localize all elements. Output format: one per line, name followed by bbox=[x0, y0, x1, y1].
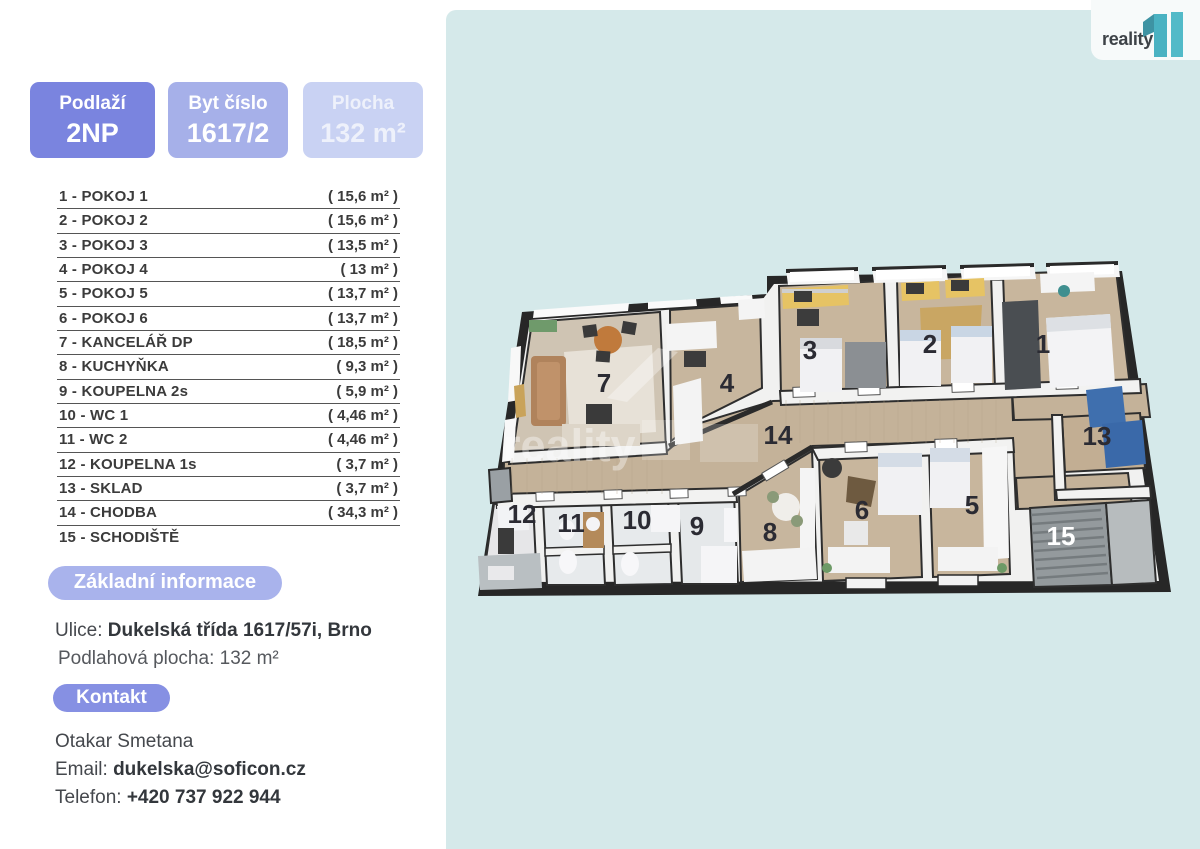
svg-text:5: 5 bbox=[965, 490, 979, 520]
svg-text:9: 9 bbox=[690, 511, 704, 541]
svg-text:reality: reality bbox=[503, 420, 636, 471]
svg-text:1: 1 bbox=[1036, 329, 1050, 359]
svg-text:6: 6 bbox=[855, 495, 869, 525]
svg-text:7: 7 bbox=[597, 368, 611, 398]
svg-text:15: 15 bbox=[1047, 521, 1076, 551]
svg-text:3: 3 bbox=[803, 335, 817, 365]
svg-text:11: 11 bbox=[557, 508, 585, 538]
svg-text:4: 4 bbox=[720, 368, 735, 398]
svg-text:10: 10 bbox=[623, 505, 652, 535]
svg-text:14: 14 bbox=[764, 420, 793, 450]
svg-text:8: 8 bbox=[763, 517, 777, 547]
svg-text:2: 2 bbox=[923, 329, 937, 359]
svg-text:12: 12 bbox=[508, 499, 537, 529]
svg-text:13: 13 bbox=[1083, 421, 1112, 451]
